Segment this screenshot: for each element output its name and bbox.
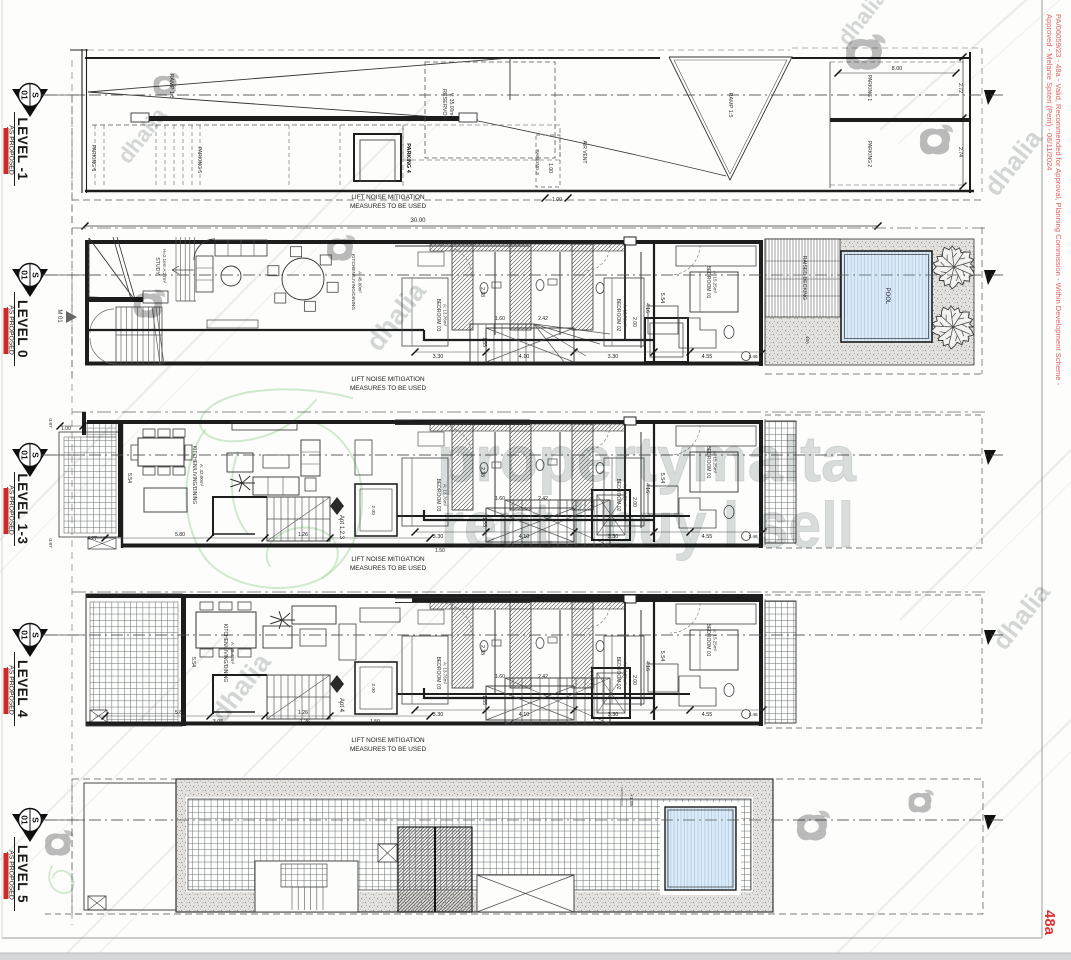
svg-text:2.72: 2.72	[957, 83, 963, 93]
svg-text:Apt 1,2,3: Apt 1,2,3	[338, 515, 344, 540]
svg-text:2.00: 2.00	[631, 317, 637, 327]
svg-text:A: 13.76m²: A: 13.76m²	[443, 304, 448, 327]
svg-text:+1.05: +1.05	[628, 794, 634, 806]
svg-text:4.16: 4.16	[644, 661, 650, 671]
svg-text:3.30: 3.30	[608, 712, 619, 718]
svg-text:4.10: 4.10	[519, 712, 530, 718]
svg-text:PARKING 3: PARKING 3	[534, 149, 540, 175]
svg-text:AS PROPOSED: AS PROPOSED	[8, 305, 15, 355]
svg-text:PARKING 4: PARKING 4	[405, 143, 411, 173]
svg-text:M 01: M 01	[56, 309, 62, 323]
svg-text:1.50: 1.50	[370, 719, 380, 725]
svg-text:1.00: 1.00	[547, 163, 553, 173]
svg-text:A: 42.00m²: A: 42.00m²	[199, 464, 204, 487]
svg-text:A: 13.76m²: A: 13.76m²	[623, 662, 628, 685]
svg-text:4.10: 4.10	[519, 354, 530, 360]
svg-text:01: 01	[20, 90, 30, 100]
svg-text:4.27: 4.27	[87, 536, 97, 542]
svg-text:S: S	[31, 452, 41, 458]
svg-text:2.74: 2.74	[957, 147, 963, 157]
svg-text:1.55: 1.55	[481, 695, 487, 705]
svg-text:LEVEL 4: LEVEL 4	[15, 660, 30, 718]
svg-text:BEDROOM 01: BEDROOM 01	[705, 266, 711, 299]
svg-text:5.54: 5.54	[126, 473, 132, 483]
svg-text:2.00: 2.00	[370, 505, 376, 515]
svg-text:1.00: 1.00	[61, 426, 71, 432]
svg-text:1.26: 1.26	[298, 532, 308, 538]
svg-text:rent l buy l sell: rent l buy l sell	[441, 489, 854, 561]
svg-text:LIFT NOISE MITIGATION: LIFT NOISE MITIGATION	[351, 194, 425, 201]
svg-text:Apt 4: Apt 4	[338, 698, 344, 713]
svg-text:1.60: 1.60	[495, 316, 505, 322]
svg-text:A: 13.76m²: A: 13.76m²	[443, 662, 448, 685]
svg-text:8.00: 8.00	[892, 66, 903, 72]
svg-text:2.42: 2.42	[538, 316, 548, 322]
svg-text:AIR VENT: AIR VENT	[581, 140, 587, 163]
svg-text:AS PROPOSED: AS PROPOSED	[8, 485, 15, 535]
svg-text:LIFT NOISE MITIGATION: LIFT NOISE MITIGATION	[351, 376, 425, 383]
svg-text:4.55: 4.55	[702, 354, 713, 360]
svg-text:RAMP 1:5: RAMP 1:5	[727, 93, 733, 118]
svg-text:3.30: 3.30	[433, 354, 444, 360]
svg-text:01: 01	[20, 270, 30, 280]
svg-text:01: 01	[20, 450, 30, 460]
svg-text:MEASURES TO BE USED: MEASURES TO BE USED	[350, 746, 427, 753]
svg-text:MEASURES TO BE USED: MEASURES TO BE USED	[350, 385, 427, 392]
svg-text:S: S	[31, 632, 41, 638]
svg-text:LEVEL 0: LEVEL 0	[15, 300, 30, 358]
svg-text:RESERVOIR: RESERVOIR	[441, 89, 447, 121]
svg-text:V: 35.00m³: V: 35.00m³	[448, 93, 454, 118]
svg-text:1.60: 1.60	[495, 674, 505, 680]
svg-text:1.26: 1.26	[298, 710, 308, 716]
svg-text:LEVEL 5: LEVEL 5	[15, 845, 30, 903]
svg-text:A: 45.00m²: A: 45.00m²	[358, 271, 363, 293]
svg-text:5.80: 5.80	[175, 710, 185, 716]
svg-text:LIFT NOISE MITIGATION: LIFT NOISE MITIGATION	[351, 737, 425, 744]
svg-text:LEVEL 1-3: LEVEL 1-3	[15, 473, 30, 544]
svg-text:30.00: 30.00	[410, 218, 426, 224]
svg-text:PARKING 1: PARKING 1	[866, 75, 872, 102]
svg-text:A: 13.76m²: A: 13.76m²	[623, 304, 628, 327]
svg-text:2.42: 2.42	[538, 674, 548, 680]
svg-text:5.54: 5.54	[659, 293, 665, 304]
svg-text:3.30: 3.30	[608, 354, 619, 360]
svg-text:MEASURES TO BE USED: MEASURES TO BE USED	[350, 565, 427, 572]
svg-text:BEDROOM 02: BEDROOM 02	[615, 299, 621, 332]
svg-text:4.16: 4.16	[644, 303, 650, 313]
svg-text:4.55: 4.55	[702, 712, 713, 718]
svg-text:PARKING 5: PARKING 5	[196, 147, 202, 174]
svg-text:A: 15.25m²: A: 15.25m²	[713, 271, 718, 294]
svg-text:0.87: 0.87	[47, 418, 53, 428]
svg-text:PA/06059/23 - 48a - Valid, Rec: PA/06059/23 - 48a - Valid, Recommended f…	[1054, 14, 1063, 386]
svg-text:LIFT NOISE MITIGATION: LIFT NOISE MITIGATION	[351, 556, 425, 563]
svg-text:1.46: 1.46	[748, 354, 758, 360]
svg-text:propertymalta: propertymalta	[437, 423, 856, 495]
svg-text:KITCHEN/LIVING/DINING: KITCHEN/LIVING/DINING	[191, 446, 197, 505]
svg-text:01: 01	[20, 630, 30, 640]
svg-text:RAISED DECKING: RAISED DECKING	[801, 256, 807, 300]
svg-text:BEDROOM 03: BEDROOM 03	[435, 299, 441, 332]
svg-text:1.26: 1.26	[300, 719, 310, 725]
svg-text:PARKING 6: PARKING 6	[90, 145, 96, 172]
svg-text:5.54: 5.54	[190, 657, 196, 667]
svg-text:5.80: 5.80	[175, 532, 185, 538]
svg-text:KITCHEN/LIVING/DINING: KITCHEN/LIVING/DINING	[350, 254, 356, 311]
svg-text:MEASURES TO BE USED: MEASURES TO BE USED	[350, 203, 427, 210]
svg-text:AS PROPOSED: AS PROPOSED	[8, 125, 15, 175]
svg-text:S: S	[31, 817, 41, 823]
svg-text:H=2.16m A:27m²: H=2.16m A:27m²	[162, 249, 167, 283]
svg-text:BEDROOM 02: BEDROOM 02	[615, 657, 621, 690]
svg-text:BEDROOM 01: BEDROOM 01	[705, 624, 711, 657]
svg-text:2.38: 2.38	[479, 645, 485, 655]
svg-text:3.30: 3.30	[433, 712, 444, 718]
svg-text:S: S	[31, 92, 41, 98]
svg-text:A: 15.25m²: A: 15.25m²	[713, 629, 718, 652]
svg-text:Approved - Melanie Spiteri (Pe: Approved - Melanie Spiteri (Perit) - 06/…	[1045, 14, 1054, 170]
svg-text:AS PROPOSED: AS PROPOSED	[8, 665, 15, 715]
svg-text:BEDROOM 03: BEDROOM 03	[435, 657, 441, 690]
svg-text:2.38: 2.38	[479, 287, 485, 297]
svg-text:2.00: 2.00	[370, 683, 376, 693]
svg-text:A: 38.49m²: A: 38.49m²	[230, 642, 235, 665]
svg-text:LEVEL -1: LEVEL -1	[15, 117, 30, 180]
svg-text:AS PROPOSED: AS PROPOSED	[8, 850, 15, 900]
svg-text:48a: 48a	[1041, 910, 1058, 936]
svg-text:1.55: 1.55	[481, 337, 487, 347]
svg-text:KITCHEN/LIVING/DINING: KITCHEN/LIVING/DINING	[222, 624, 228, 683]
svg-text:1.46: 1.46	[748, 712, 758, 718]
svg-text:0.87: 0.87	[47, 538, 53, 548]
svg-text:S: S	[31, 272, 41, 278]
svg-text:PARKING 2: PARKING 2	[866, 141, 872, 168]
svg-text:2.00: 2.00	[631, 675, 637, 685]
svg-text:STUDY: STUDY	[154, 257, 160, 275]
svg-text:01: 01	[20, 815, 30, 825]
svg-text:5.54: 5.54	[659, 651, 665, 662]
svg-text:40A: 40A	[805, 336, 810, 344]
svg-text:POOL: POOL	[884, 288, 890, 305]
